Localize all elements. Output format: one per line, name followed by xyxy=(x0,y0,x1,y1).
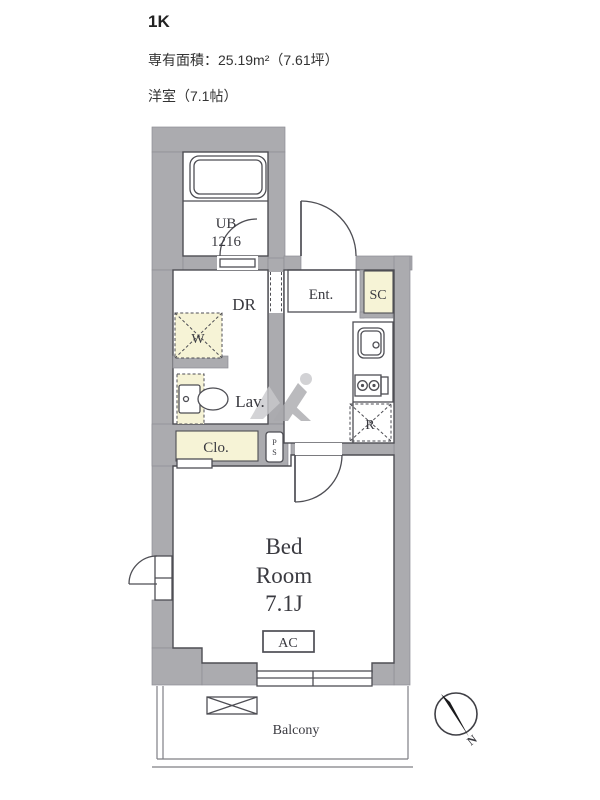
entrance-door xyxy=(301,201,356,256)
pipe-space-label-s: S xyxy=(272,448,276,457)
unit-bath-size-label: 1216 xyxy=(211,234,242,250)
dressing-room-opening xyxy=(269,272,283,313)
unit-bath-label: UB xyxy=(216,216,237,232)
closet-label: Clo. xyxy=(203,440,228,456)
dressing-room-label: DR xyxy=(232,295,256,314)
side-window xyxy=(129,556,172,600)
bedroom-label-line3: 7.1J xyxy=(265,591,303,616)
pipe-space-label-p: P xyxy=(272,438,277,447)
bedroom-label-line1: Bed xyxy=(265,534,303,559)
ac-label: AC xyxy=(278,636,297,651)
bedroom-door-opening xyxy=(295,443,342,455)
balcony-hatch xyxy=(207,697,257,714)
compass-icon: N xyxy=(435,693,480,748)
compass-north-label: N xyxy=(464,732,480,749)
lavatory-label: Lav. xyxy=(235,392,265,411)
floorplan-page: 1K 専有面積：25.19m²（7.61坪） 洋室（7.1帖） xyxy=(0,0,600,800)
bedroom-label-line2: Room xyxy=(256,563,312,588)
refrigerator-label: R xyxy=(365,418,375,433)
balcony-sliding-window xyxy=(257,671,372,686)
floor-plan-drawing: N UB 1216 DR Ent. SC W Lav. R Clo. P S B… xyxy=(0,0,600,800)
shoe-closet-label: SC xyxy=(369,288,386,303)
closet-step xyxy=(177,459,212,468)
shoe-closet-wall xyxy=(360,270,364,318)
entrance-label: Ent. xyxy=(309,287,334,303)
unit-bath-door-panel xyxy=(220,259,255,267)
balcony-label: Balcony xyxy=(273,723,320,738)
washing-machine-label: W xyxy=(191,332,205,347)
pipe-space-box xyxy=(266,432,283,462)
